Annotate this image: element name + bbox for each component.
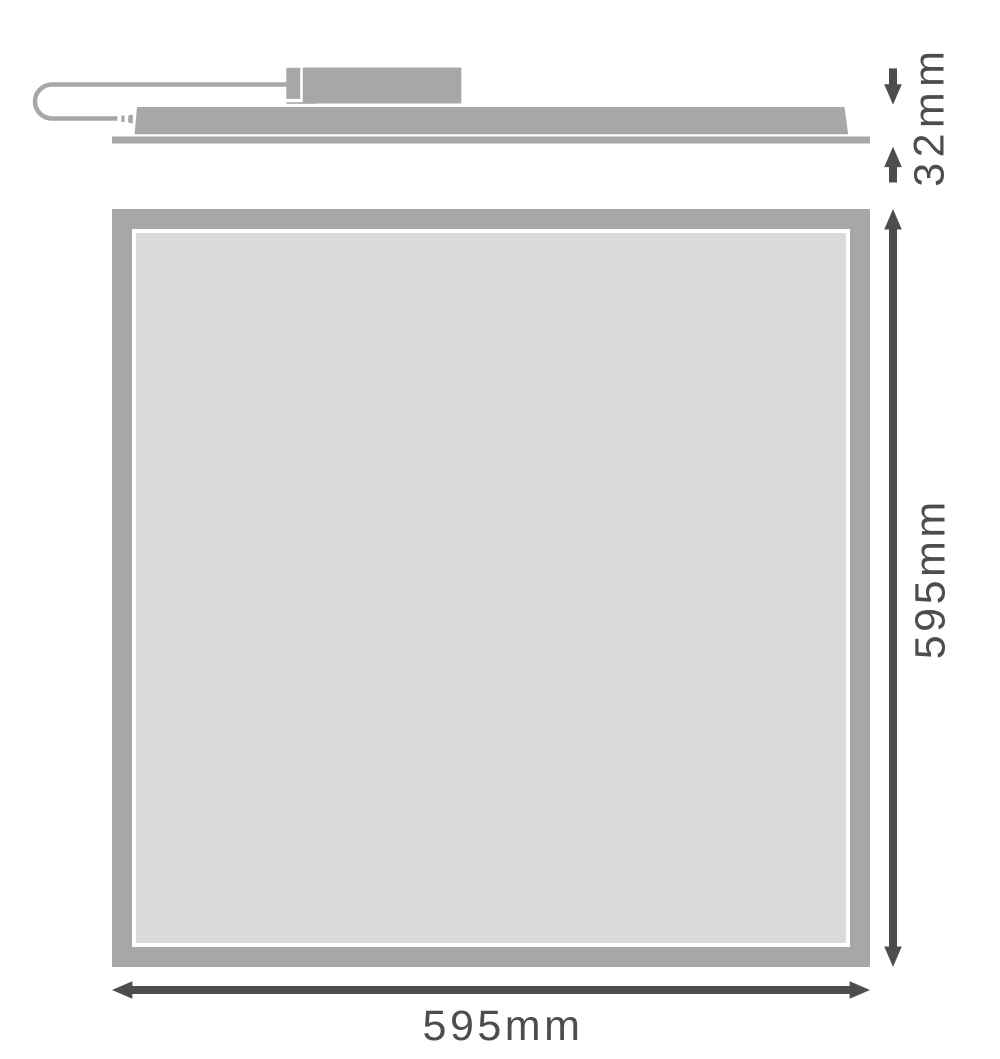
- svg-text:32mm: 32mm: [906, 46, 954, 187]
- svg-text:595mm: 595mm: [907, 498, 955, 659]
- svg-text:595mm: 595mm: [423, 1002, 584, 1050]
